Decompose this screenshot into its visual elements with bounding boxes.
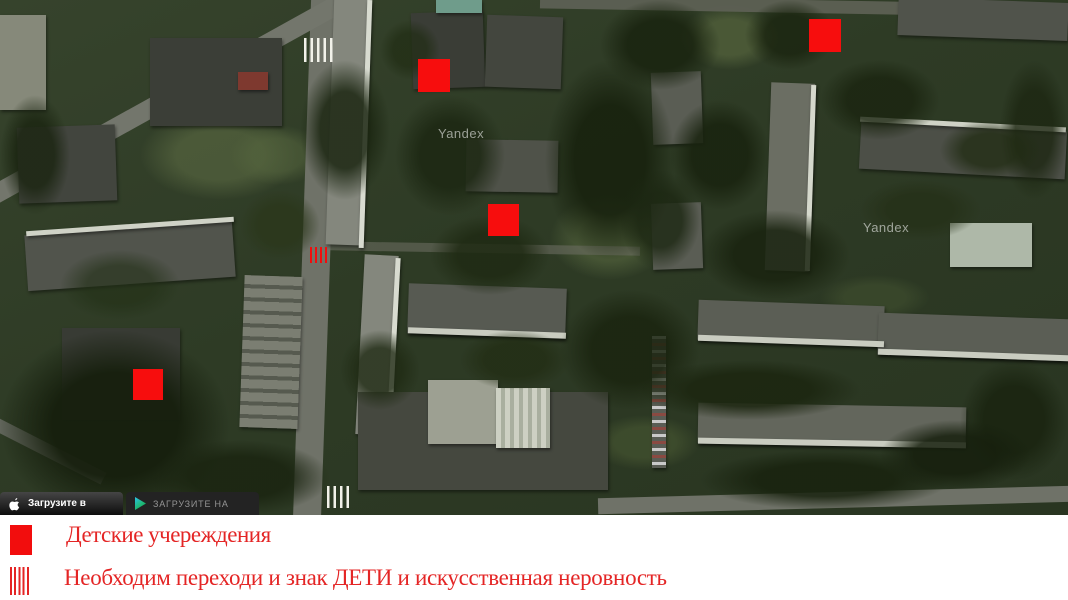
screenshot: Yandex Yandex Загрузите в ЗАГРУЗИТЕ НА Д… [0, 0, 1068, 600]
yandex-watermark: Yandex [438, 126, 484, 141]
app-badges: Загрузите в ЗАГРУЗИТЕ НА [0, 492, 259, 515]
legend: Детские учереждения Необходим переходи и… [0, 515, 1068, 600]
appstore-badge[interactable]: Загрузите в [0, 492, 123, 515]
children-facility-marker [418, 59, 450, 92]
legend-red-square-icon [10, 525, 32, 555]
children-facility-marker [488, 204, 519, 236]
legend-crosswalk-label: Необходим переходи и знак ДЕТИ и искусст… [64, 565, 667, 591]
crosswalk-mark [327, 486, 352, 508]
children-facility-marker [809, 19, 841, 52]
crosswalk-mark [304, 38, 335, 62]
apple-icon [9, 497, 21, 511]
legend-children-label: Детские учереждения [66, 522, 271, 548]
children-facility-marker [133, 369, 163, 400]
appstore-badge-label: Загрузите в [28, 498, 86, 509]
crosswalk-mark [310, 247, 327, 263]
googleplay-badge[interactable]: ЗАГРУЗИТЕ НА [126, 492, 259, 515]
legend-crosswalk-icon [10, 567, 31, 595]
satellite-map[interactable]: Yandex Yandex Загрузите в ЗАГРУЗИТЕ НА [0, 0, 1068, 515]
google-play-icon [135, 497, 146, 510]
googleplay-badge-label: ЗАГРУЗИТЕ НА [153, 499, 229, 509]
yandex-watermark: Yandex [863, 220, 909, 235]
